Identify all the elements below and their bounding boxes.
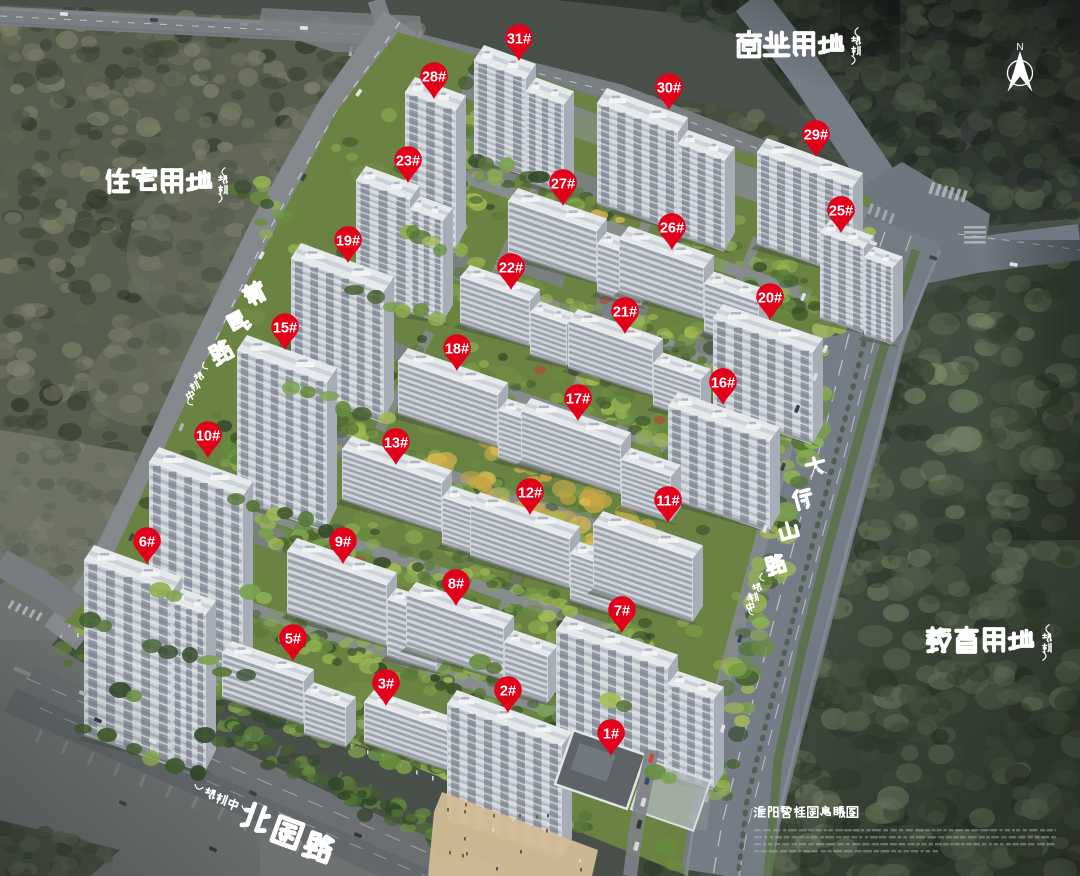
svg-text:28#: 28# — [422, 69, 446, 85]
svg-text:10#: 10# — [196, 428, 220, 444]
svg-text:6#: 6# — [139, 534, 155, 550]
svg-text:21#: 21# — [613, 304, 637, 320]
svg-text:11#: 11# — [656, 493, 680, 509]
svg-text:26#: 26# — [660, 220, 684, 236]
svg-text:27#: 27# — [551, 176, 575, 192]
svg-text:20#: 20# — [758, 290, 782, 306]
svg-text:3#: 3# — [378, 676, 394, 692]
svg-text:25#: 25# — [829, 203, 853, 219]
svg-text:17#: 17# — [566, 391, 590, 407]
svg-text:7#: 7# — [614, 603, 630, 619]
svg-text:12#: 12# — [518, 485, 542, 501]
svg-text:30#: 30# — [657, 80, 681, 96]
svg-text:9#: 9# — [335, 534, 351, 550]
svg-text:31#: 31# — [507, 31, 531, 47]
svg-text:16#: 16# — [711, 375, 735, 391]
svg-text:8#: 8# — [448, 576, 464, 592]
svg-text:13#: 13# — [384, 435, 408, 451]
svg-text:22#: 22# — [499, 260, 523, 276]
svg-text:23#: 23# — [396, 153, 420, 169]
svg-text:29#: 29# — [804, 127, 828, 143]
svg-text:5#: 5# — [285, 631, 301, 647]
svg-text:15#: 15# — [273, 320, 297, 336]
svg-text:18#: 18# — [445, 341, 469, 357]
svg-text:19#: 19# — [336, 233, 360, 249]
svg-text:1#: 1# — [603, 726, 619, 742]
svg-text:2#: 2# — [500, 683, 516, 699]
